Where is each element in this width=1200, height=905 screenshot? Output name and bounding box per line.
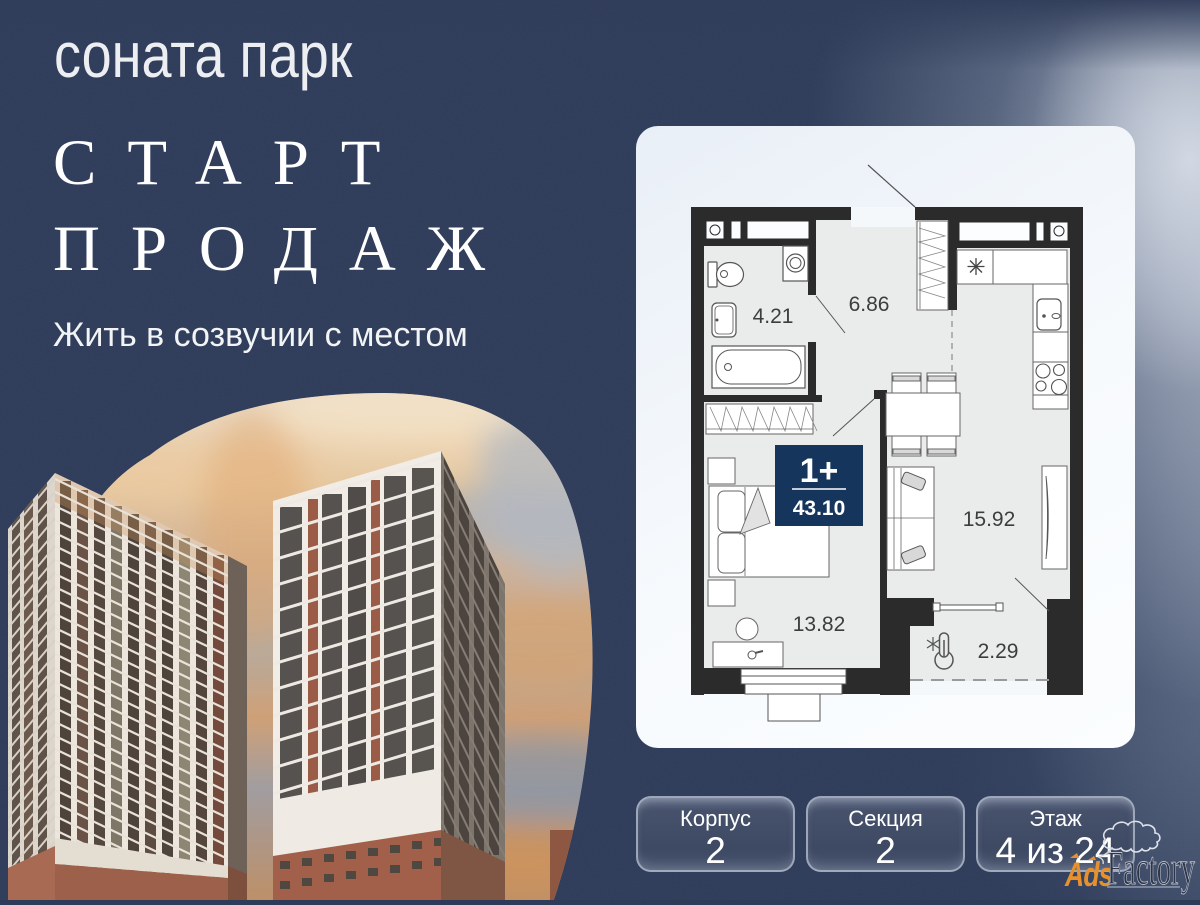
svg-text:6.86: 6.86 bbox=[849, 293, 890, 316]
svg-text:43.10: 43.10 bbox=[793, 497, 846, 520]
svg-text:2.29: 2.29 bbox=[978, 640, 1019, 663]
svg-text:4.21: 4.21 bbox=[753, 305, 794, 328]
svg-text:1+: 1+ bbox=[800, 452, 839, 490]
svg-text:15.92: 15.92 bbox=[963, 508, 1016, 531]
svg-text:Ads: Ads bbox=[1064, 856, 1113, 894]
svg-text:13.82: 13.82 bbox=[793, 613, 846, 636]
